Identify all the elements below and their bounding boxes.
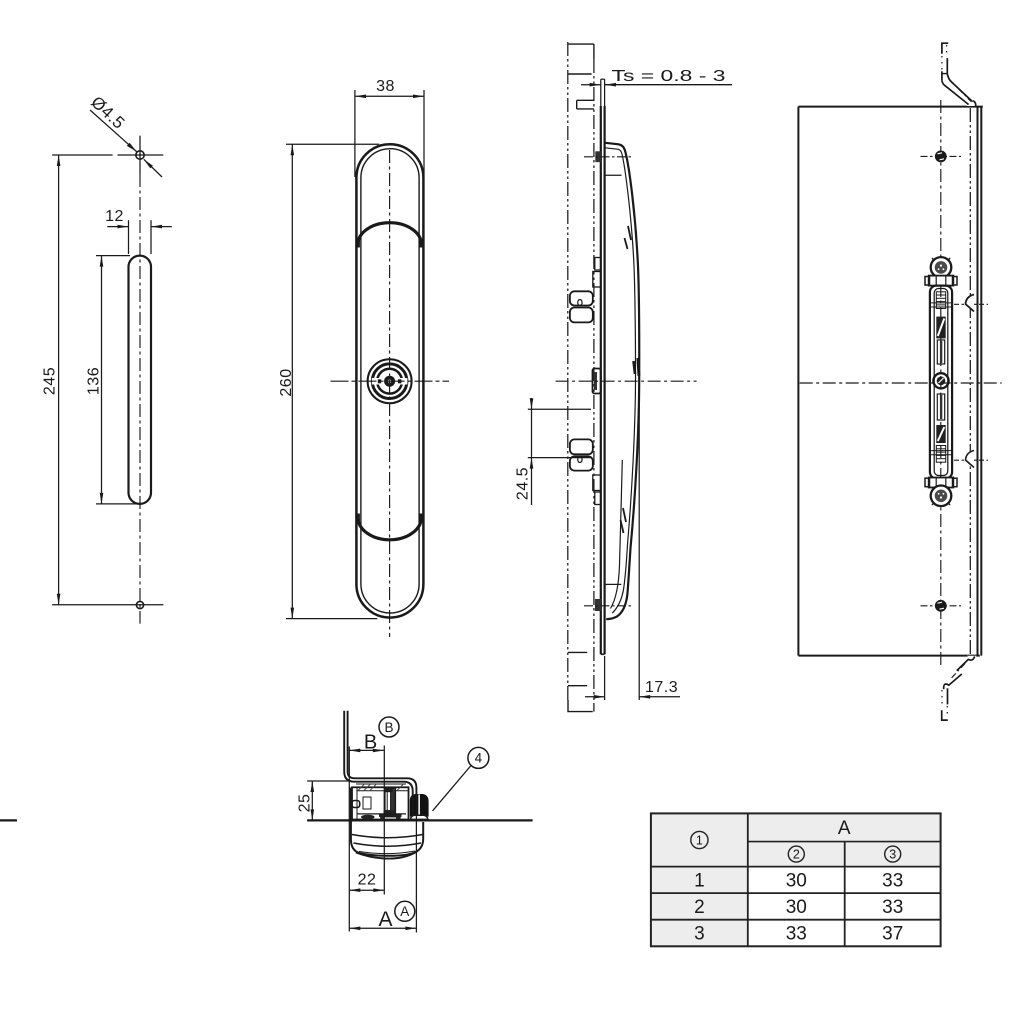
svg-text:260: 260 xyxy=(278,368,295,396)
svg-text:12: 12 xyxy=(105,208,124,225)
svg-text:245: 245 xyxy=(42,367,59,395)
svg-text:A: A xyxy=(400,904,409,919)
svg-text:22: 22 xyxy=(358,872,377,889)
svg-text:3: 3 xyxy=(889,847,896,861)
svg-text:3: 3 xyxy=(694,924,705,945)
svg-text:38: 38 xyxy=(376,78,395,95)
svg-text:1: 1 xyxy=(696,833,703,847)
svg-text:37: 37 xyxy=(882,924,903,945)
svg-text:30: 30 xyxy=(786,871,807,892)
svg-text:33: 33 xyxy=(882,871,903,892)
svg-text:30: 30 xyxy=(786,897,807,918)
svg-text:A: A xyxy=(838,818,851,839)
svg-text:33: 33 xyxy=(882,897,903,918)
svg-text:Ts = 0.8 - 3: Ts = 0.8 - 3 xyxy=(612,68,726,85)
svg-text:33: 33 xyxy=(786,924,807,945)
svg-text:A: A xyxy=(378,908,392,931)
svg-text:2: 2 xyxy=(793,847,800,861)
svg-text:17.3: 17.3 xyxy=(645,679,678,696)
svg-text:25: 25 xyxy=(297,794,314,813)
svg-text:136: 136 xyxy=(86,367,103,395)
svg-text:B: B xyxy=(384,720,393,735)
svg-text:2: 2 xyxy=(694,897,705,918)
svg-text:1: 1 xyxy=(694,871,705,892)
svg-text:24.5: 24.5 xyxy=(515,467,532,500)
svg-text:4: 4 xyxy=(475,751,483,766)
